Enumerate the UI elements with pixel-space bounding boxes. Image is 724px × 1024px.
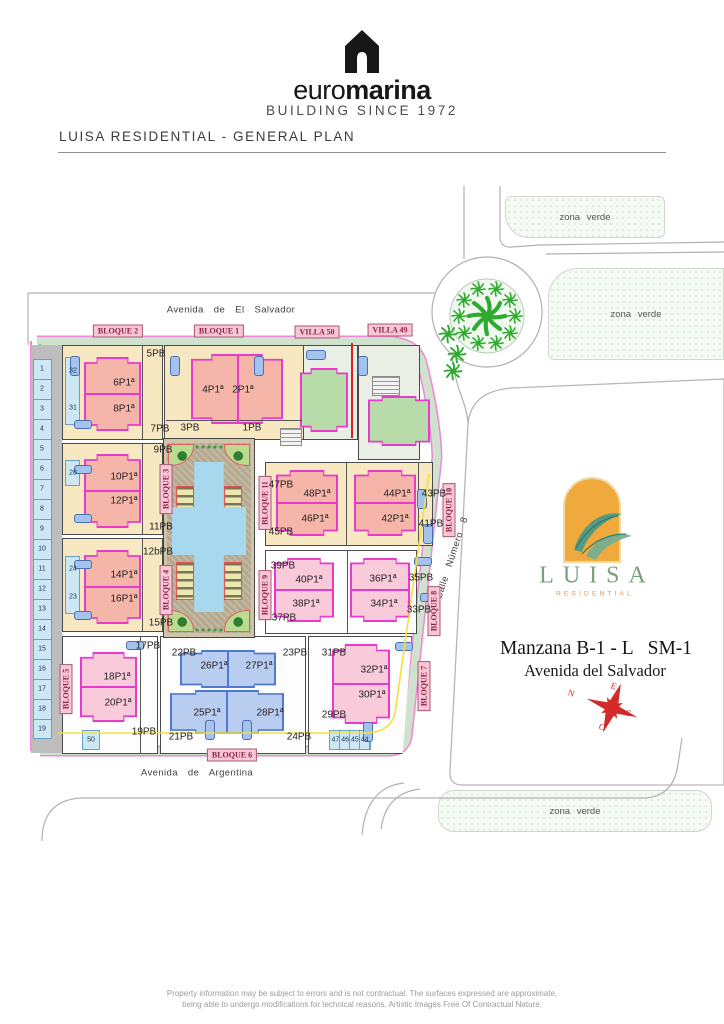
car-icon <box>242 720 252 740</box>
roundabout <box>432 257 542 367</box>
unit-label: 20P1ª <box>104 698 131 709</box>
parking-number: 19 <box>38 726 46 733</box>
unit-label: 7PB <box>151 424 170 435</box>
palm-icon <box>440 326 457 343</box>
plot-wall <box>347 550 348 634</box>
car-icon <box>170 356 180 376</box>
parking-number: 14 <box>38 626 46 633</box>
block-badge: BLOQUE 9 <box>259 570 272 620</box>
unit-divider <box>274 589 334 591</box>
unit-label: 46P1ª <box>301 514 328 525</box>
block-badge: VILLA 50 <box>295 326 340 339</box>
car-icon <box>358 356 368 376</box>
unit-label: 12bPB <box>143 547 173 558</box>
parking-number: 15 <box>38 646 46 653</box>
palm-frond-icon <box>552 492 644 572</box>
unit-label: 47PB <box>269 480 293 491</box>
unit-label: 12P1ª <box>110 496 137 507</box>
unit-label: 21PB <box>169 732 193 743</box>
footer-disclaimer: Property information may be subject to e… <box>0 988 724 1010</box>
unit-label: 9PB <box>154 445 173 456</box>
euromarina-house-icon <box>342 28 382 74</box>
unit-label: 44P1ª <box>383 489 410 500</box>
unit-divider <box>276 502 338 504</box>
stairs <box>280 428 302 446</box>
plot-wall <box>142 345 143 440</box>
car-icon <box>254 356 264 376</box>
street-label: Avenida de Argentina <box>141 768 253 779</box>
car-icon <box>205 720 215 740</box>
block-badge: BLOQUE 5 <box>60 664 73 714</box>
parking-number: 28 <box>69 470 77 477</box>
brand-tagline: BUILDING SINCE 1972 <box>0 103 724 118</box>
parking-number: 24 <box>69 566 77 573</box>
car-icon <box>414 557 432 566</box>
parking-number: 47 46 45 44 <box>332 737 369 744</box>
plot-wall <box>142 443 143 535</box>
unit-label: 3PB <box>181 423 200 434</box>
unit-label: 25P1ª <box>193 708 220 719</box>
manzana-label: Manzana B-1 - L SM-1 <box>500 638 692 660</box>
parking-number: 17 <box>38 686 46 693</box>
block-badge: BLOQUE 4 <box>160 565 173 615</box>
unit-label: 24PB <box>287 732 311 743</box>
unit-label: 34P1ª <box>370 599 397 610</box>
unit-label: 28P1ª <box>256 708 283 719</box>
brand-marina: marina <box>345 75 431 105</box>
parking-number: 12 <box>38 586 46 593</box>
unit-label: 11PB <box>149 522 173 533</box>
unit-divider <box>84 586 141 588</box>
unit-label: 29PB <box>322 710 346 721</box>
unit-divider <box>332 683 390 685</box>
unit-label: 33PB <box>407 605 431 616</box>
plot-wall <box>166 420 302 421</box>
unit-divider <box>226 690 228 734</box>
parking-number: 2 <box>40 386 44 393</box>
unit-label: 10P1ª <box>110 472 137 483</box>
brand-name: euromarina <box>0 79 724 101</box>
parking-number: 3 <box>40 406 44 413</box>
unit-label: 1PB <box>243 423 262 434</box>
unit-label: 37PB <box>272 613 296 624</box>
parking-number: 11 <box>38 566 45 573</box>
unit-label: 35PB <box>409 573 433 584</box>
block-badge: BLOQUE 3 <box>160 464 173 514</box>
page-title: LUISA RESIDENTIAL - GENERAL PLAN <box>59 129 355 144</box>
street-label: Avenida de El Salvador <box>167 305 295 316</box>
sun-loungers <box>224 562 242 600</box>
parking-number: 9 <box>40 526 44 533</box>
unit-label: 18P1ª <box>103 672 130 683</box>
car-icon <box>395 642 413 651</box>
car-icon <box>74 420 92 429</box>
unit-label: 32P1ª <box>360 665 387 676</box>
parking-number: 32 <box>69 368 77 375</box>
title-rule <box>58 152 666 153</box>
unit-label: 16P1ª <box>110 594 137 605</box>
car-icon <box>74 611 92 620</box>
parking-number: 1 <box>40 366 44 373</box>
unit-label: 8P1ª <box>113 404 135 415</box>
unit-label: 17PB <box>136 641 160 652</box>
unit-label: 22PB <box>172 648 196 659</box>
unit-label: 41PB <box>419 519 443 530</box>
luisa-logo-sub: RESIDENTIAL <box>556 591 634 598</box>
unit-label: 43PB <box>422 489 446 500</box>
block-badge: BLOQUE 6 <box>207 749 257 762</box>
block-badge: BLOQUE 7 <box>418 661 431 711</box>
unit-label: 39PB <box>271 561 295 572</box>
stairs <box>372 376 400 396</box>
parking-number: 7 <box>40 486 44 493</box>
villa-50-building <box>300 368 348 432</box>
villa-49-building <box>368 396 430 446</box>
palm-icon <box>469 298 505 334</box>
unit-label: 2P1ª <box>232 385 254 396</box>
unit-divider <box>354 502 416 504</box>
parking-number: 16 <box>38 666 46 673</box>
plot-wall <box>346 462 347 546</box>
parking-number: 50 <box>87 737 95 744</box>
parking-number: 6 <box>40 466 44 473</box>
parking-number: 10 <box>38 546 46 553</box>
luisa-logo-name: LUISA <box>539 563 655 590</box>
parking-number: 31 <box>69 405 77 412</box>
unit-label: 31PB <box>322 648 346 659</box>
unit-divider <box>80 686 137 688</box>
unit-label: 5PB <box>147 349 166 360</box>
unit-label: 45PB <box>269 527 293 538</box>
parking-number: 18 <box>38 706 46 713</box>
unit-divider <box>84 490 141 492</box>
parking-number: 8 <box>40 506 44 513</box>
brand-euro: euro <box>293 75 345 105</box>
sun-loungers <box>176 562 194 600</box>
palm-icon <box>445 363 462 380</box>
unit-label: 38P1ª <box>292 599 319 610</box>
unit-label: 23PB <box>283 648 307 659</box>
footer-line-2: being able to undergo modifications for … <box>182 1000 542 1009</box>
unit-label: 26P1ª <box>200 661 227 672</box>
unit-label: 14P1ª <box>110 570 137 581</box>
unit-label: 4P1ª <box>202 385 224 396</box>
palm-icon <box>449 346 466 363</box>
unit-label: 40P1ª <box>295 575 322 586</box>
general-plan-page: { "header": { "brand_euro": "euro", "bra… <box>0 0 724 1024</box>
car-icon <box>74 514 92 523</box>
footer-line-1: Property information may be subject to e… <box>167 989 557 998</box>
car-icon <box>306 350 326 360</box>
parking-number: 23 <box>69 594 77 601</box>
unit-label: 27P1ª <box>245 661 272 672</box>
brand-header: euromarina BUILDING SINCE 1972 <box>0 28 724 118</box>
parking-number: 4 <box>40 426 44 433</box>
unit-divider <box>350 589 410 591</box>
unit-label: 19PB <box>132 727 156 738</box>
unit-label: 6P1ª <box>113 378 135 389</box>
unit-label: 42P1ª <box>381 514 408 525</box>
unit-divider <box>84 393 141 395</box>
block-badge: BLOQUE 2 <box>93 325 143 338</box>
block-badge: VILLA 49 <box>368 324 413 337</box>
unit-label: 30P1ª <box>358 690 385 701</box>
parking-number: 5 <box>40 446 44 453</box>
unit-label: 36P1ª <box>369 574 396 585</box>
unit-label: 15PB <box>149 618 173 629</box>
parking-number: 13 <box>38 606 46 613</box>
block-badge: BLOQUE 1 <box>194 325 244 338</box>
unit-label: 48P1ª <box>303 489 330 500</box>
